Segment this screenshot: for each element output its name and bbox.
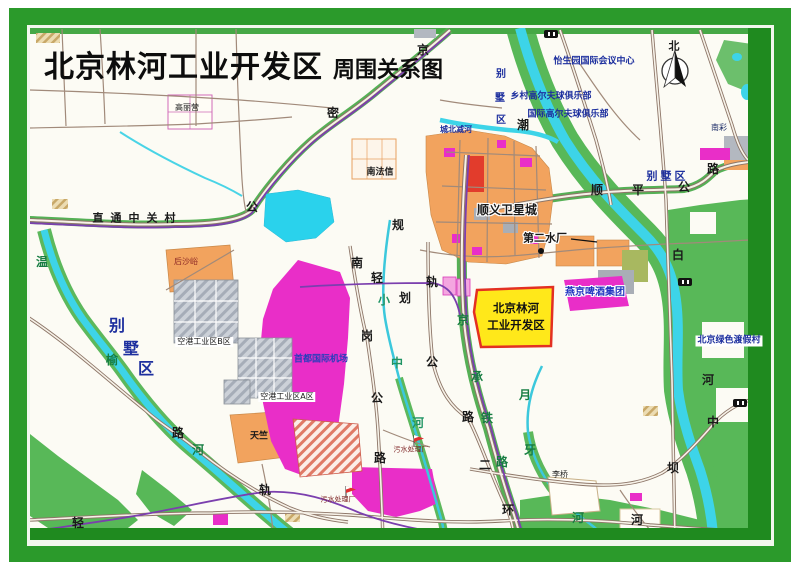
map-title-main: 北京林河工业开发区 (44, 42, 323, 86)
linhe-zone-label-line2: 工业开发区 (487, 317, 545, 334)
bridge-icon (733, 399, 747, 407)
linhe-zone-label: 北京林河 工业开发区 (487, 300, 545, 335)
map-page: 怡生园国际会议中心乡村高尔夫球俱乐部国际高尔夫球俱乐部北京绿色渡假村首都国际机场… (0, 0, 800, 570)
bridge-icon (678, 278, 692, 286)
waterworks-dot-icon (538, 248, 544, 254)
map-title-sub: 周围关系图 (333, 52, 443, 84)
map-title: 北京林河工业开发区 周围关系图 (44, 42, 443, 86)
bridge-icon (544, 30, 558, 38)
linhe-zone-label-line1: 北京林河 (487, 300, 545, 317)
